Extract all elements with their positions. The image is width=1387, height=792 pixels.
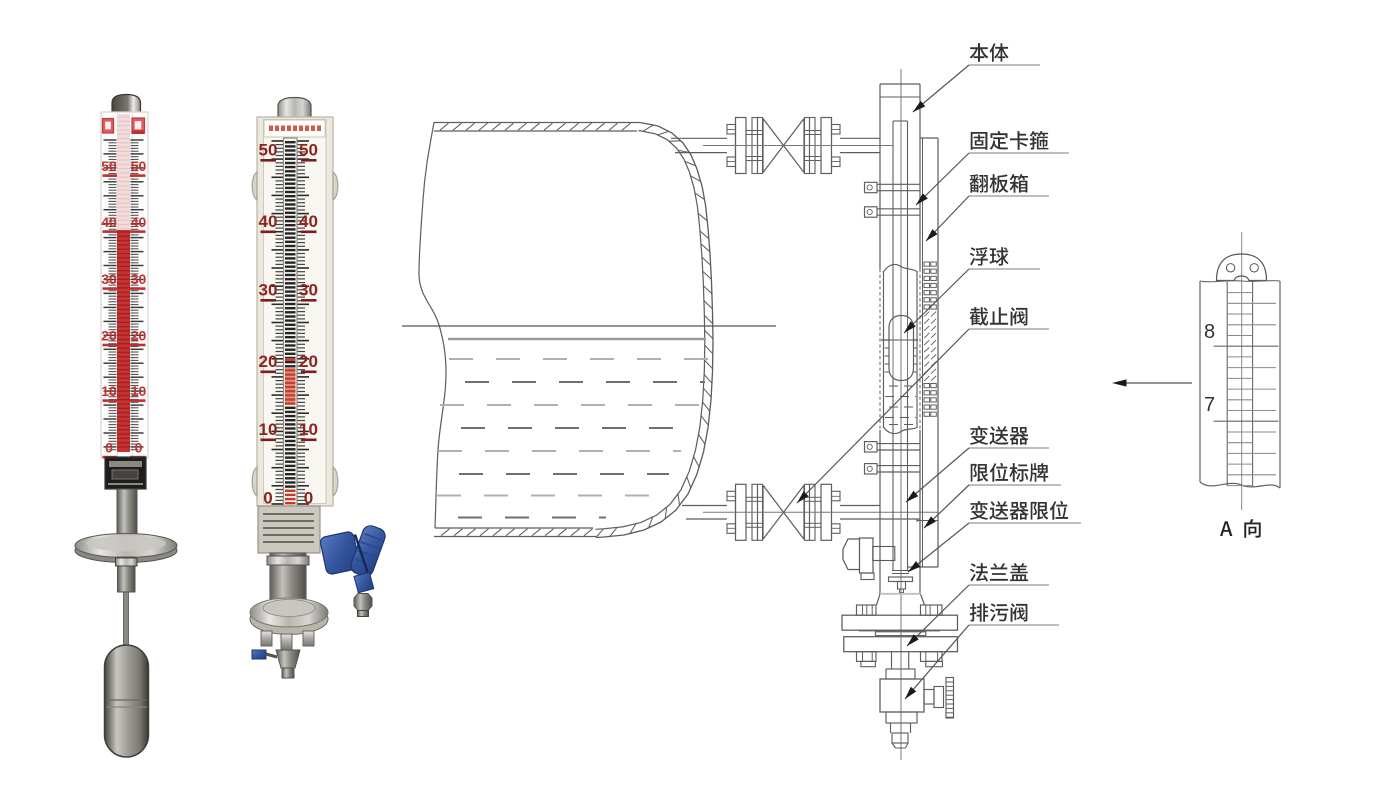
- svg-text:10: 10: [299, 420, 318, 439]
- svg-text:0: 0: [105, 440, 113, 456]
- svg-text:8: 8: [1204, 321, 1215, 343]
- svg-text:40: 40: [131, 214, 147, 230]
- svg-text:20: 20: [131, 327, 147, 343]
- svg-text:40: 40: [299, 212, 318, 231]
- svg-text:40: 40: [101, 214, 117, 230]
- svg-text:20: 20: [299, 352, 318, 371]
- svg-text:50: 50: [131, 158, 147, 174]
- svg-text:20: 20: [259, 352, 278, 371]
- svg-text:0: 0: [304, 489, 313, 508]
- svg-text:50: 50: [299, 141, 318, 160]
- svg-text:30: 30: [259, 281, 278, 300]
- svg-text:20: 20: [101, 327, 117, 343]
- svg-text:0: 0: [263, 489, 272, 508]
- svg-text:10: 10: [101, 383, 117, 399]
- svg-text:7: 7: [1204, 394, 1215, 416]
- svg-text:10: 10: [259, 420, 278, 439]
- svg-text:10: 10: [131, 383, 147, 399]
- svg-text:30: 30: [131, 271, 147, 287]
- svg-text:50: 50: [101, 158, 117, 174]
- svg-text:0: 0: [135, 440, 143, 456]
- svg-text:50: 50: [259, 141, 278, 160]
- svg-text:40: 40: [259, 212, 278, 231]
- svg-text:30: 30: [101, 271, 117, 287]
- svg-text:30: 30: [299, 281, 318, 300]
